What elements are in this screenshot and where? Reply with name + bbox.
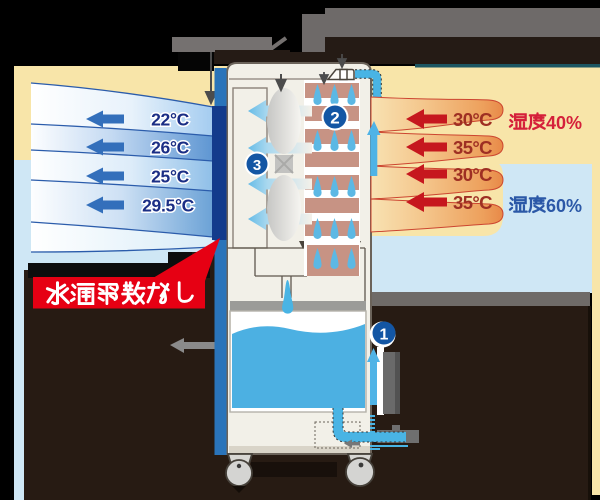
svg-text:29.5°C: 29.5°C xyxy=(142,196,195,216)
svg-text:60%: 60% xyxy=(546,196,582,216)
svg-text:26°C: 26°C xyxy=(151,138,190,158)
svg-text:2: 2 xyxy=(330,109,339,128)
svg-text:3: 3 xyxy=(253,157,261,174)
svg-text:25°C: 25°C xyxy=(151,167,190,187)
svg-text:1: 1 xyxy=(380,327,389,344)
svg-text:35°C: 35°C xyxy=(453,137,492,158)
svg-text:30°C: 30°C xyxy=(453,164,492,185)
svg-text:22°C: 22°C xyxy=(151,110,190,130)
svg-text:40%: 40% xyxy=(546,113,582,133)
svg-text:35°C: 35°C xyxy=(453,192,492,213)
svg-text:30°C: 30°C xyxy=(453,109,492,130)
